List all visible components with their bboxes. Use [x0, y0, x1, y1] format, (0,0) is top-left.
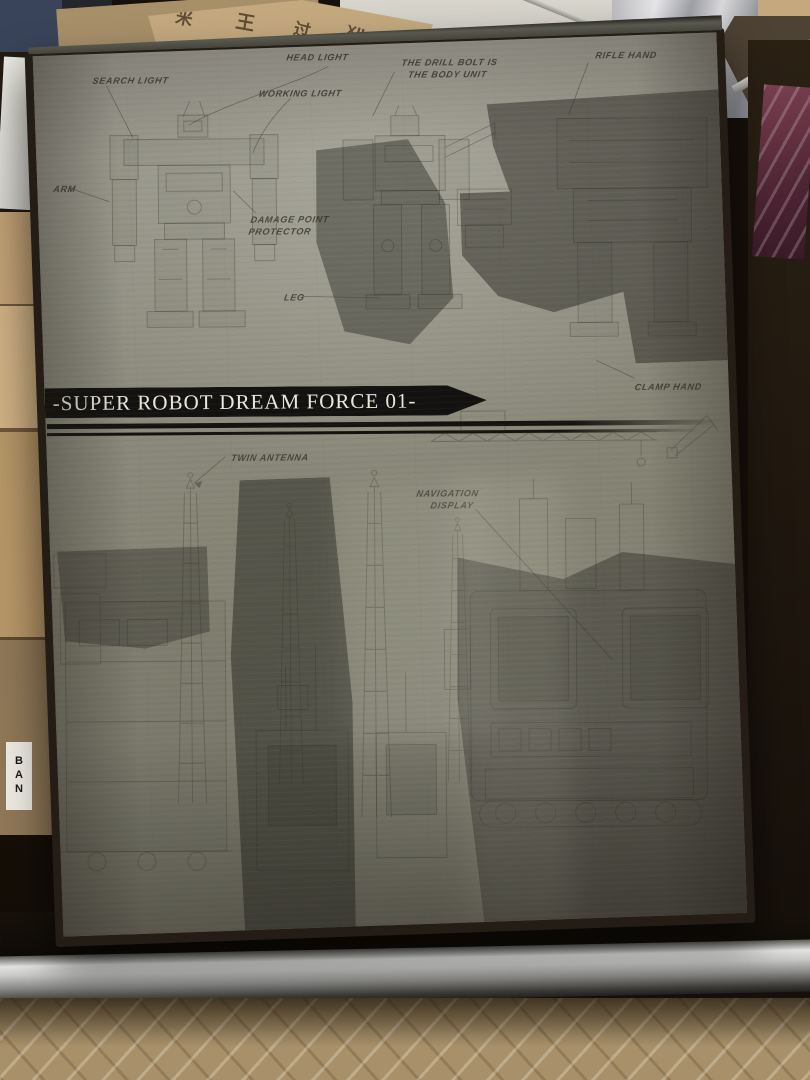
model-kit-box: SEARCH LIGHT HEAD LIGHT WORKING LIGHT TH… [25, 28, 756, 947]
carton-side-label-text: BAN [13, 755, 25, 797]
box-front-panel: SEARCH LIGHT HEAD LIGHT WORKING LIGHT TH… [33, 32, 747, 936]
vignette-shading [33, 32, 747, 936]
carton-side-label: BAN [6, 742, 32, 810]
photo-of-model-kit-box: 米 王 过 XII BAN [0, 0, 810, 1080]
carton-marking: 王 [234, 7, 257, 37]
diamond-plate-floor [0, 998, 810, 1080]
